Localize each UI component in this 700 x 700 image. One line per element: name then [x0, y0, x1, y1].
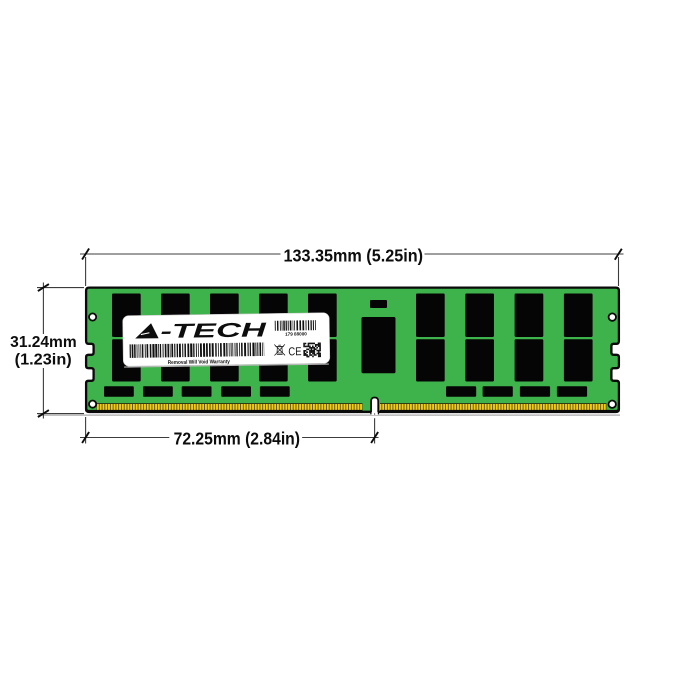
svg-text:133.35mm (5.25in): 133.35mm (5.25in) — [284, 245, 424, 265]
svg-text:(1.23in): (1.23in) — [15, 352, 72, 369]
svg-text:72.25mm (2.84in): 72.25mm (2.84in) — [174, 428, 300, 448]
svg-text:-TECH: -TECH — [160, 319, 267, 343]
svg-text:CE: CE — [288, 346, 302, 358]
svg-text:179 88000: 179 88000 — [285, 331, 307, 336]
svg-text:Removal Will Void Warranty: Removal Will Void Warranty — [168, 359, 230, 366]
svg-text:31.24mm: 31.24mm — [10, 334, 77, 351]
